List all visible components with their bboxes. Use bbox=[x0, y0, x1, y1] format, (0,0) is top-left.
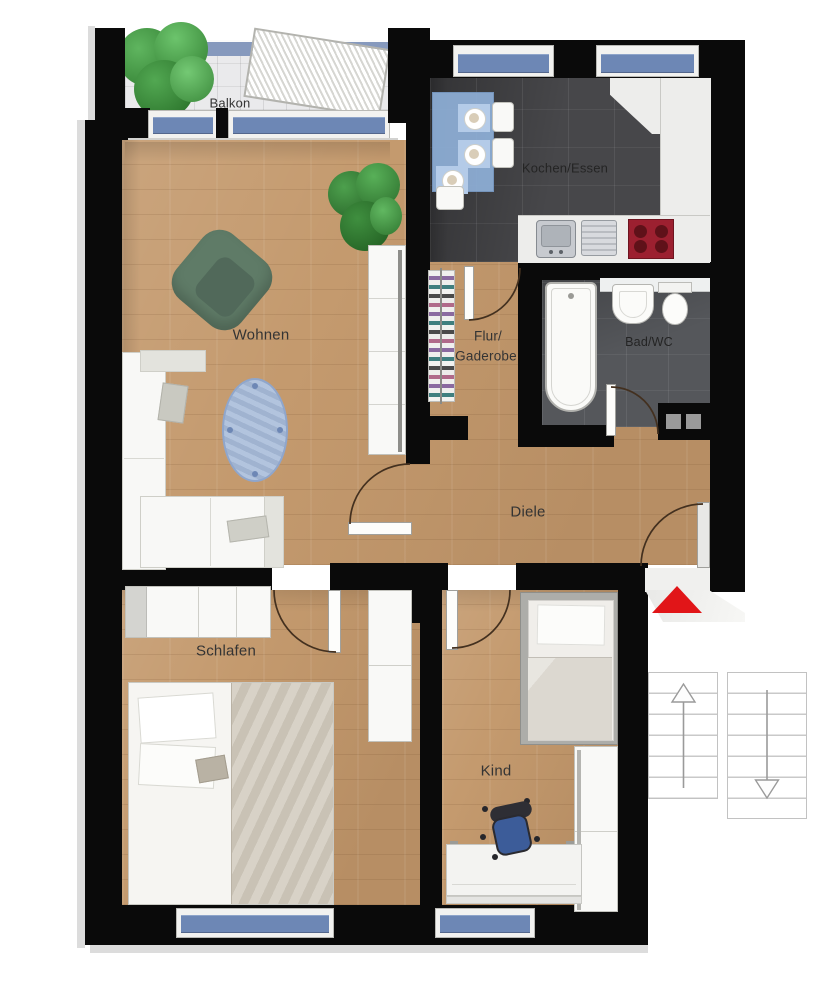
toilet-tank bbox=[658, 282, 692, 293]
flur-label-line1: Flur/ bbox=[474, 329, 502, 344]
dining-chair-3 bbox=[436, 186, 464, 210]
diele-label: Diele bbox=[510, 504, 545, 521]
wall-flur-bottom-stub bbox=[418, 416, 468, 440]
wohnen-sideboard bbox=[368, 245, 406, 455]
plate-1 bbox=[464, 108, 486, 130]
balcony-window-post-mid bbox=[216, 108, 228, 142]
wohnen-label: Wohnen bbox=[233, 327, 290, 344]
outer-trim-balcony-left bbox=[88, 26, 95, 122]
sofa-pillow-1 bbox=[157, 382, 188, 423]
dining-chair-2 bbox=[492, 138, 514, 168]
armchair bbox=[170, 226, 274, 332]
kind-bed bbox=[520, 592, 618, 745]
stair-flight-up bbox=[648, 672, 718, 799]
installation-box-2 bbox=[686, 414, 701, 429]
balcony-window-small-glass bbox=[153, 117, 213, 134]
kitchen-window-2-glass bbox=[601, 54, 694, 73]
dining-chair-1 bbox=[492, 102, 514, 132]
coat-rack-pole bbox=[440, 268, 442, 404]
balcony-door-glass bbox=[233, 117, 385, 134]
entrance-door-leaf bbox=[697, 502, 710, 568]
bed-blanket bbox=[231, 683, 333, 904]
wall-right-stub bbox=[710, 568, 745, 592]
schlafen-window-glass bbox=[181, 915, 329, 933]
bed-pillow-1 bbox=[137, 692, 216, 743]
kind-window-glass bbox=[440, 915, 530, 933]
bad-door-leaf bbox=[606, 384, 616, 436]
outer-trim-left bbox=[77, 120, 85, 948]
kind-bed-pillow bbox=[537, 604, 606, 645]
stair-flight-down bbox=[727, 672, 807, 819]
wall-kitchen-bad bbox=[518, 260, 712, 280]
flur-label-line2: Gaderobe bbox=[455, 349, 517, 364]
installation-box-1 bbox=[666, 414, 681, 429]
schlafen-bed bbox=[128, 682, 334, 905]
wall-bottom bbox=[85, 905, 648, 945]
wall-flur-bad bbox=[518, 278, 542, 430]
kitchen-hob bbox=[628, 219, 674, 259]
kind-door-leaf bbox=[446, 590, 458, 650]
bed-throw-pillow bbox=[195, 755, 229, 784]
wall-bad-bottom bbox=[518, 425, 614, 447]
wall-right bbox=[710, 60, 745, 568]
kitchen-sink bbox=[536, 220, 576, 258]
kind-bed-blanket bbox=[528, 657, 612, 740]
schlafen-label: Schlafen bbox=[196, 643, 256, 660]
plate-2 bbox=[464, 144, 486, 166]
schlafen-cabinet bbox=[368, 590, 412, 742]
entrance-arrow-icon bbox=[652, 586, 702, 613]
wall-wohnen-flur bbox=[406, 123, 430, 464]
schlafen-wardrobe bbox=[125, 586, 271, 638]
wohnen-diele-door-leaf bbox=[348, 522, 412, 535]
kind-desk-chair bbox=[480, 796, 540, 862]
wall-balcony-left-post bbox=[95, 28, 125, 123]
kitchen-drainer bbox=[581, 220, 617, 256]
oval-rug bbox=[222, 378, 288, 482]
toilet-bowl bbox=[662, 293, 688, 325]
wall-kind-right bbox=[618, 563, 648, 945]
kitchen-flur-door-leaf bbox=[464, 266, 474, 320]
balcony-plant bbox=[112, 20, 222, 122]
schlafen-door-leaf bbox=[328, 590, 341, 653]
wall-left bbox=[85, 120, 122, 945]
kochen-essen-label: Kochen/Essen bbox=[522, 161, 608, 176]
outer-trim-bottom bbox=[90, 945, 648, 953]
wohnen-plant bbox=[326, 163, 402, 255]
wash-basin bbox=[612, 284, 654, 324]
kind-label: Kind bbox=[481, 763, 512, 780]
floor-plan: Balkon bbox=[0, 0, 828, 1000]
wall-schlafen-kind bbox=[420, 563, 442, 945]
bad-wc-label: Bad/WC bbox=[625, 335, 673, 349]
kitchen-window-1-glass bbox=[458, 54, 549, 73]
bathtub bbox=[545, 282, 597, 412]
